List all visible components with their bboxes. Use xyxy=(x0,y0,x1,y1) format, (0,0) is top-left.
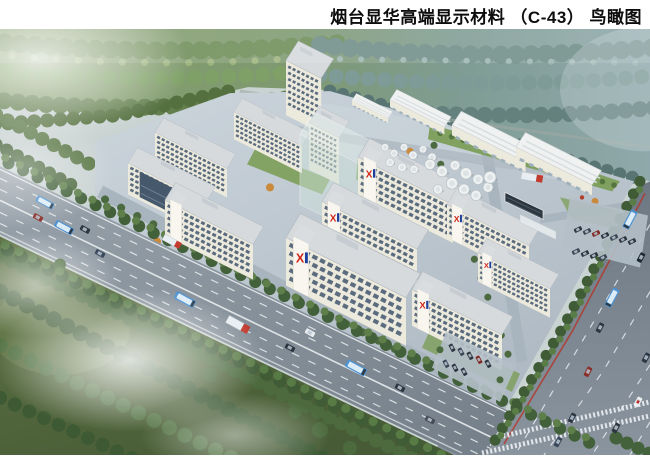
page: 烟台显华高端显示材料 （C-43） 鸟瞰图 xyxy=(0,0,650,460)
aerial-rendering: X xyxy=(0,29,650,455)
drawing-title: 烟台显华高端显示材料 （C-43） 鸟瞰图 xyxy=(0,3,642,28)
